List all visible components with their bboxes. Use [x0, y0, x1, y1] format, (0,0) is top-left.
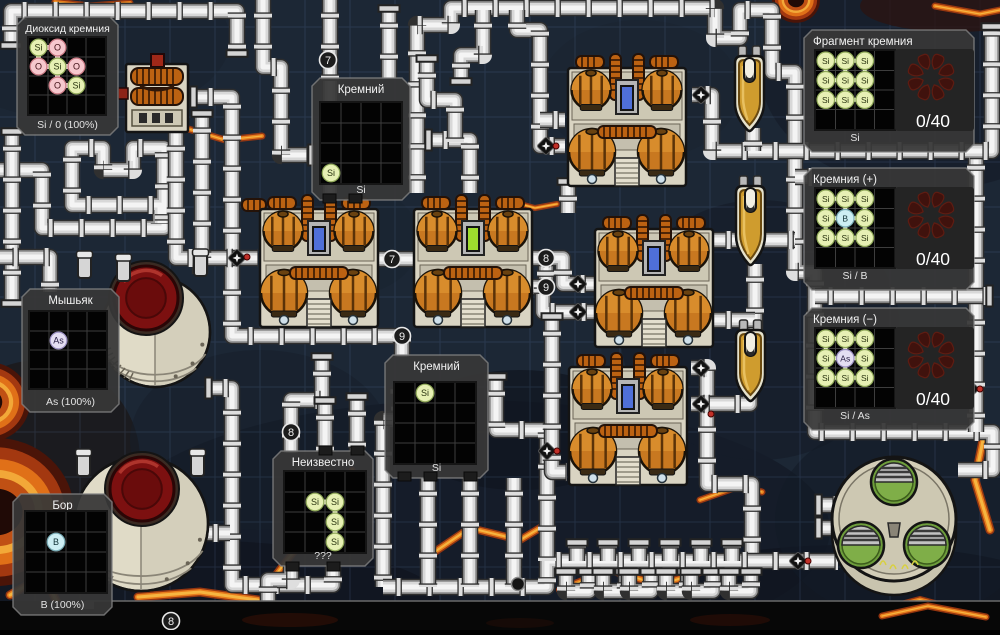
svg-text:Si: Si: [861, 213, 869, 223]
svg-text:0/40: 0/40: [916, 111, 950, 131]
svg-text:Si: Si: [72, 81, 80, 91]
svg-text:Si: Si: [331, 517, 339, 527]
svg-text:Si: Si: [861, 334, 869, 344]
svg-text:Si: Si: [822, 75, 830, 85]
svg-text:Si: Si: [327, 168, 335, 178]
svg-text:Мышьяк: Мышьяк: [48, 295, 93, 307]
svg-text:B: B: [842, 213, 848, 223]
svg-text:Si: Si: [331, 537, 339, 547]
svg-text:8: 8: [168, 616, 174, 628]
svg-text:???: ???: [314, 550, 332, 562]
svg-text:As: As: [840, 353, 850, 363]
svg-text:9: 9: [399, 331, 405, 343]
svg-text:Si: Si: [822, 194, 830, 204]
svg-text:Si: Si: [822, 56, 830, 66]
svg-text:As: As: [53, 336, 64, 346]
svg-text:Si: Si: [331, 497, 339, 507]
svg-text:Si / 0 (100%): Si / 0 (100%): [37, 119, 98, 131]
svg-text:Кремний: Кремний: [338, 84, 385, 96]
svg-text:B (100%): B (100%): [41, 599, 85, 611]
svg-text:Si: Si: [841, 373, 849, 383]
svg-text:O: O: [35, 62, 42, 72]
svg-text:Si: Si: [822, 95, 830, 105]
svg-text:O: O: [54, 81, 61, 91]
svg-text:Si: Si: [822, 233, 830, 243]
svg-text:Диоксид кремния: Диоксид кремния: [25, 23, 110, 35]
svg-text:Si: Si: [861, 353, 869, 363]
svg-text:Si: Si: [421, 388, 429, 398]
svg-text:7: 7: [389, 254, 395, 266]
svg-text:Неизвестно: Неизвестно: [292, 457, 355, 469]
svg-text:Si: Si: [861, 95, 869, 105]
svg-text:Si: Si: [861, 56, 869, 66]
svg-text:Si: Si: [822, 353, 830, 363]
svg-text:Si: Si: [822, 213, 830, 223]
svg-text:Si: Si: [841, 95, 849, 105]
svg-text:Si: Si: [822, 373, 830, 383]
svg-text:Si: Si: [841, 334, 849, 344]
svg-text:Si: Si: [822, 334, 830, 344]
svg-text:Si: Si: [53, 62, 61, 72]
svg-text:B: B: [53, 537, 59, 547]
svg-text:Кремний: Кремний: [413, 361, 460, 373]
svg-text:Si: Si: [861, 233, 869, 243]
svg-text:Si / As: Si / As: [840, 410, 870, 422]
svg-text:Кремния (+): Кремния (+): [813, 174, 877, 186]
svg-text:0/40: 0/40: [916, 389, 950, 409]
svg-text:O: O: [54, 43, 61, 53]
svg-text:Si: Si: [850, 132, 859, 144]
svg-text:O: O: [73, 62, 80, 72]
svg-text:0/40: 0/40: [916, 249, 950, 269]
svg-text:Si / B: Si / B: [842, 270, 867, 282]
svg-text:9: 9: [543, 282, 549, 294]
svg-text:Si: Si: [841, 56, 849, 66]
svg-text:8: 8: [543, 253, 549, 265]
svg-text:Фрагмент кремния: Фрагмент кремния: [813, 36, 913, 48]
svg-text:Si: Si: [841, 233, 849, 243]
svg-text:Si: Si: [841, 194, 849, 204]
svg-text:Si: Si: [311, 497, 319, 507]
svg-text:Кремния (−): Кремния (−): [813, 314, 877, 326]
svg-text:Si: Si: [841, 75, 849, 85]
svg-text:8: 8: [288, 427, 294, 439]
svg-text:Si: Si: [861, 75, 869, 85]
svg-text:7: 7: [325, 55, 331, 67]
svg-text:Si: Si: [861, 194, 869, 204]
svg-text:Si: Si: [34, 43, 42, 53]
svg-text:Si: Si: [861, 373, 869, 383]
svg-text:As (100%): As (100%): [46, 396, 95, 408]
